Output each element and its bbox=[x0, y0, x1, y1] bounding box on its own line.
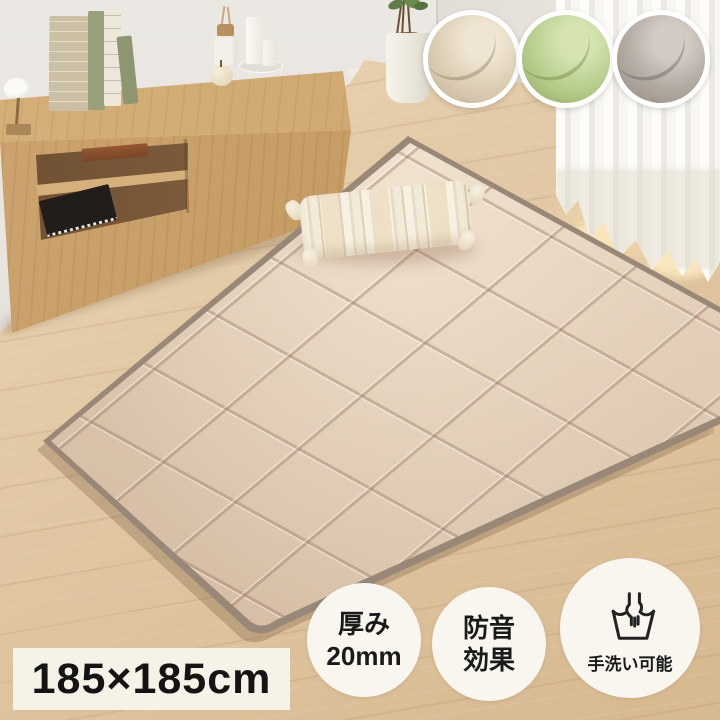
swatch-fabric-gray bbox=[617, 15, 705, 103]
swatch-fabric-green bbox=[522, 15, 610, 103]
badge-thickness: 厚み 20mm bbox=[307, 583, 421, 697]
badge-thickness-line1: 厚み bbox=[338, 608, 390, 641]
badge-thickness-line2: 20mm bbox=[326, 640, 401, 673]
product-photo: 185×185cm 厚み 20mm 防音 効果 手洗い可能 bbox=[0, 0, 720, 720]
handwash-icon bbox=[599, 587, 661, 649]
size-label: 185×185cm bbox=[13, 648, 290, 710]
badge-soundproof-line1: 防音 bbox=[463, 612, 515, 645]
book-1 bbox=[49, 16, 90, 111]
badge-handwash: 手洗い可能 bbox=[560, 558, 700, 698]
badge-handwash-label: 手洗い可能 bbox=[588, 650, 673, 675]
badge-soundproof: 防音 効果 bbox=[432, 587, 546, 701]
color-swatch-beige bbox=[423, 10, 521, 108]
color-swatch-green bbox=[517, 10, 615, 108]
apple-ornament bbox=[210, 65, 233, 86]
color-swatch-gray bbox=[612, 10, 710, 108]
book-2 bbox=[88, 11, 105, 110]
swatch-fabric-beige bbox=[428, 15, 516, 103]
apple-ornament-stem bbox=[220, 60, 222, 67]
bird-figurine-base bbox=[6, 124, 31, 135]
diffuser-bottle bbox=[214, 36, 237, 67]
candle-tall bbox=[246, 17, 263, 64]
candle-short bbox=[263, 40, 277, 66]
cushion-body bbox=[298, 179, 474, 260]
badge-soundproof-line2: 効果 bbox=[463, 644, 515, 677]
cushion bbox=[277, 180, 493, 275]
